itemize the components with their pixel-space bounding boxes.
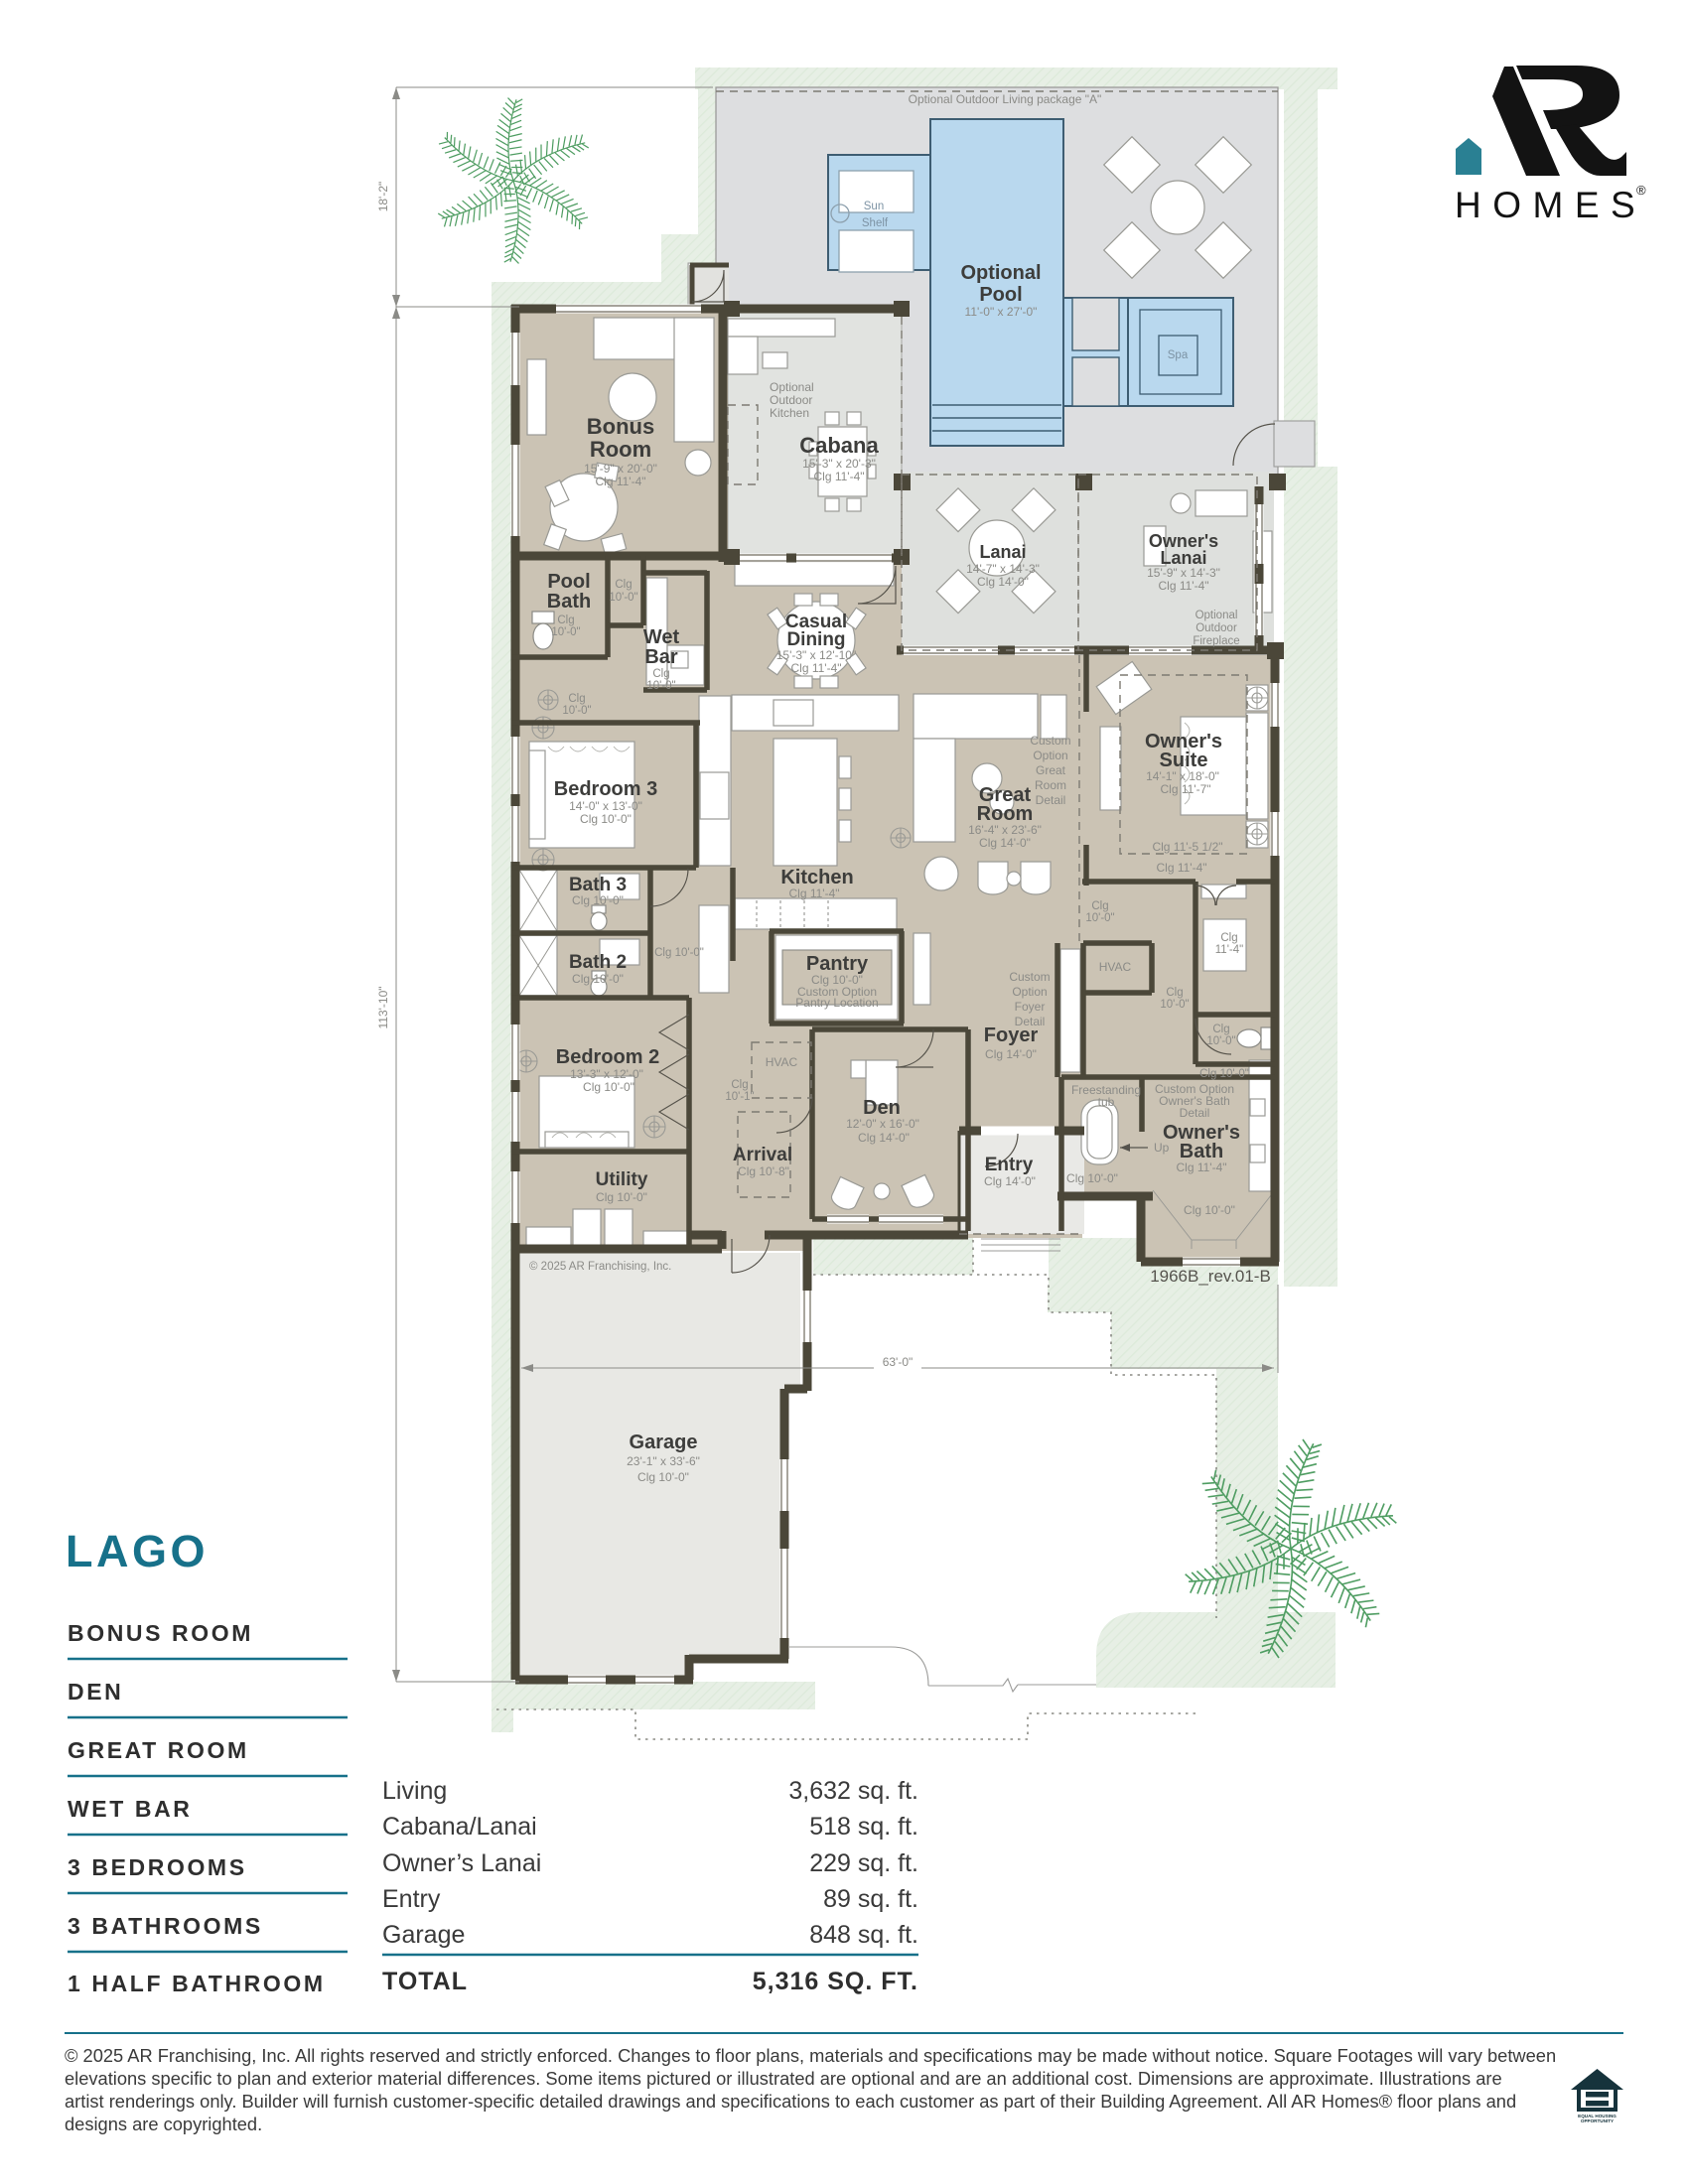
svg-text:Foyer: Foyer [1015,1000,1046,1014]
svg-text:Outdoor: Outdoor [770,393,812,407]
svg-text:Detail: Detail [1036,793,1066,807]
svg-text:artist renderings only. Builde: artist renderings only. Builder will fur… [65,2091,1516,2112]
svg-text:Clg 10'-0": Clg 10'-0" [572,972,624,986]
svg-text:Shelf: Shelf [862,217,889,229]
svg-text:Foyer: Foyer [984,1024,1039,1046]
svg-text:Clg: Clg [652,668,669,680]
svg-text:Clg: Clg [1220,932,1237,944]
svg-text:Cabana: Cabana [799,433,879,458]
svg-text:Clg 10'-0": Clg 10'-0" [654,947,704,959]
svg-text:Clg 14'-0": Clg 14'-0" [977,575,1029,589]
svg-text:63'-0": 63'-0" [883,1355,914,1369]
svg-text:Clg: Clg [731,1079,748,1091]
svg-text:Bath 2: Bath 2 [569,952,627,973]
svg-text:Spa: Spa [1168,349,1189,361]
svg-text:10'-0": 10'-0" [1160,999,1189,1011]
svg-text:10'-0": 10'-0" [646,680,675,692]
svg-text:15'-9" x 14'-3": 15'-9" x 14'-3" [1147,566,1220,580]
svg-text:Bath: Bath [1180,1141,1223,1162]
svg-text:Clg 14'-0": Clg 14'-0" [985,1047,1037,1061]
svg-text:13'-3" x 12'-0": 13'-3" x 12'-0" [570,1067,643,1081]
svg-text:Kitchen: Kitchen [770,406,809,420]
svg-text:TOTAL: TOTAL [382,1968,468,1995]
svg-text:Pantry: Pantry [806,953,869,975]
svg-text:WET BAR: WET BAR [68,1796,193,1822]
svg-text:Bonus: Bonus [587,414,654,439]
svg-text:Option: Option [1012,985,1047,999]
svg-text:Garage: Garage [630,1432,698,1453]
svg-text:Clg 11'-4": Clg 11'-4" [1158,579,1208,593]
svg-text:Owner’s Lanai: Owner’s Lanai [382,1849,541,1877]
svg-text:Clg 11'-4": Clg 11'-4" [790,661,841,675]
svg-text:Clg: Clg [1166,987,1183,999]
svg-text:11'-0" x 27'-0": 11'-0" x 27'-0" [965,305,1038,319]
svg-text:®: ® [1636,183,1646,198]
svg-text:10'-0": 10'-0" [609,592,637,604]
svg-text:Bedroom 3: Bedroom 3 [554,778,657,800]
svg-text:OPPORTUNITY: OPPORTUNITY [1581,2118,1614,2123]
svg-text:Clg 11'-4": Clg 11'-4" [1176,1160,1226,1174]
svg-text:tub: tub [1098,1095,1115,1109]
svg-text:Clg: Clg [568,693,585,705]
svg-text:Clg 10'-0": Clg 10'-0" [637,1470,689,1484]
svg-text:Arrival: Arrival [733,1145,792,1165]
svg-text:elevations specific to plan an: elevations specific to plan and exterior… [65,2068,1502,2089]
svg-text:Clg 11'-4": Clg 11'-4" [1156,861,1206,875]
svg-text:Clg 10'-0": Clg 10'-0" [572,893,624,907]
svg-text:Den: Den [863,1097,901,1119]
svg-text:14'-7" x 14'-3": 14'-7" x 14'-3" [966,562,1040,576]
svg-text:Clg 10'-0": Clg 10'-0" [1066,1171,1118,1185]
svg-text:Clg: Clg [1212,1024,1229,1035]
svg-text:229 sq. ft.: 229 sq. ft. [809,1849,918,1877]
svg-text:Clg 10'-0": Clg 10'-0" [596,1190,647,1204]
svg-text:Clg 11'-4": Clg 11'-4" [788,887,839,900]
svg-text:3 BATHROOMS: 3 BATHROOMS [68,1913,263,1939]
svg-text:Clg 14'-0": Clg 14'-0" [979,836,1031,850]
svg-text:14'-0" x 13'-0": 14'-0" x 13'-0" [569,799,642,813]
svg-text:BONUS ROOM: BONUS ROOM [68,1620,253,1646]
svg-text:Clg 10'-0": Clg 10'-0" [583,1080,634,1094]
svg-text:Room: Room [977,803,1034,825]
svg-text:Cabana/Lanai: Cabana/Lanai [382,1813,537,1841]
svg-text:10'-1": 10'-1" [725,1091,754,1103]
svg-text:Clg 14'-0": Clg 14'-0" [984,1174,1036,1188]
svg-text:15'-3" x 12'-10": 15'-3" x 12'-10" [776,648,856,662]
svg-text:LAGO: LAGO [66,1526,209,1576]
svg-text:Bath: Bath [547,591,591,613]
svg-text:5,316 SQ. FT.: 5,316 SQ. FT. [753,1968,918,1995]
svg-text:Outdoor: Outdoor [1196,622,1237,634]
svg-text:Clg 11'-4": Clg 11'-4" [813,470,864,483]
svg-text:Pantry Location: Pantry Location [795,996,878,1010]
svg-text:Clg 10'-0": Clg 10'-0" [580,812,632,826]
svg-text:© 2025 AR Franchising, Inc.: © 2025 AR Franchising, Inc. [529,1261,671,1273]
svg-text:1 HALF BATHROOM: 1 HALF BATHROOM [68,1971,326,1996]
svg-text:Optional: Optional [770,380,814,394]
svg-text:DEN: DEN [68,1679,123,1705]
svg-text:10'-0": 10'-0" [1206,1035,1235,1047]
svg-text:14'-1" x 18'-0": 14'-1" x 18'-0" [1146,769,1219,783]
svg-text:Clg: Clg [1091,900,1108,912]
svg-text:3 BEDROOMS: 3 BEDROOMS [68,1854,247,1880]
svg-text:Clg 11'-4": Clg 11'-4" [595,475,645,488]
svg-text:Wet: Wet [643,626,680,648]
svg-text:Dining: Dining [786,629,845,650]
svg-text:Bedroom 2: Bedroom 2 [556,1046,659,1068]
svg-text:Bar: Bar [644,646,678,668]
svg-text:89 sq. ft.: 89 sq. ft. [823,1885,918,1913]
svg-text:10'-0": 10'-0" [1085,912,1114,924]
svg-text:HOMES: HOMES [1455,185,1646,225]
svg-text:Clg: Clg [557,614,574,626]
svg-text:Sun: Sun [864,201,884,212]
svg-text:Great: Great [1036,763,1066,777]
svg-text:12'-0" x 16'-0": 12'-0" x 16'-0" [846,1117,919,1131]
svg-text:Room: Room [1035,778,1066,792]
svg-text:Optional: Optional [960,262,1041,284]
svg-text:Optional Outdoor Living packag: Optional Outdoor Living package "A" [909,92,1102,106]
svg-text:Pool: Pool [979,284,1022,306]
svg-text:15'-3" x 20'-3": 15'-3" x 20'-3" [802,457,876,471]
svg-text:3,632 sq. ft.: 3,632 sq. ft. [788,1777,918,1805]
svg-text:HVAC: HVAC [766,1055,798,1069]
svg-text:© 2025 AR Franchising, Inc. Al: © 2025 AR Franchising, Inc. All rights r… [65,2045,1556,2066]
svg-text:848 sq. ft.: 848 sq. ft. [809,1921,918,1949]
svg-text:23'-1" x 33'-6": 23'-1" x 33'-6" [627,1454,700,1468]
svg-text:Entry: Entry [382,1885,441,1913]
svg-text:Room: Room [590,437,651,462]
svg-text:Kitchen: Kitchen [780,867,853,888]
svg-text:Clg 10'-0": Clg 10'-0" [1199,1068,1249,1080]
svg-text:Bath 3: Bath 3 [569,875,627,895]
svg-text:11'-4": 11'-4" [1215,944,1243,956]
svg-text:Option: Option [1033,749,1067,762]
svg-text:Entry: Entry [985,1155,1034,1175]
svg-text:Detail: Detail [1180,1106,1210,1120]
svg-text:Living: Living [382,1777,447,1805]
svg-text:Pool: Pool [547,571,590,593]
svg-text:Lanai: Lanai [1160,548,1206,568]
svg-text:Clg 11'-7": Clg 11'-7" [1160,782,1210,796]
svg-text:Suite: Suite [1160,750,1208,771]
svg-text:Custom: Custom [1030,734,1070,748]
svg-text:Garage: Garage [382,1921,465,1949]
svg-text:Clg 10'-8": Clg 10'-8" [738,1164,789,1178]
svg-text:Lanai: Lanai [979,542,1026,562]
svg-text:10'-0": 10'-0" [562,705,591,717]
svg-text:18'-2": 18'-2" [376,182,390,212]
svg-text:Fireplace: Fireplace [1193,635,1239,647]
svg-text:16'-4" x 23'-6": 16'-4" x 23'-6" [968,823,1042,837]
svg-text:Clg 10'-0": Clg 10'-0" [1184,1203,1235,1217]
svg-text:Optional: Optional [1196,610,1238,621]
svg-text:Utility: Utility [596,1169,648,1190]
svg-text:10'-0": 10'-0" [551,626,580,638]
svg-text:113'-10": 113'-10" [376,986,390,1028]
svg-text:GREAT ROOM: GREAT ROOM [68,1737,249,1763]
svg-text:15'-9" x 20'-0": 15'-9" x 20'-0" [584,462,657,476]
svg-text:Clg: Clg [615,579,632,591]
svg-text:designs are copyrighted.: designs are copyrighted. [65,2114,262,2134]
svg-text:Clg 14'-0": Clg 14'-0" [858,1131,910,1145]
svg-text:HVAC: HVAC [1099,960,1132,974]
svg-text:Custom: Custom [1009,970,1050,984]
svg-text:Clg 11'-5 1/2": Clg 11'-5 1/2" [1152,840,1222,854]
svg-text:518 sq. ft.: 518 sq. ft. [809,1813,918,1841]
svg-text:1966B_rev.01-B: 1966B_rev.01-B [1150,1267,1271,1286]
